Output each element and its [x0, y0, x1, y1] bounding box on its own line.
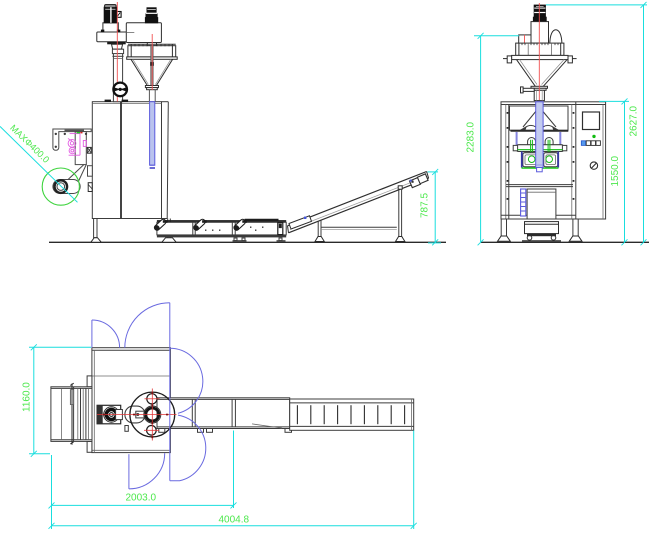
- svg-text:2283.0: 2283.0: [466, 121, 477, 152]
- svg-text:787.5: 787.5: [420, 193, 431, 218]
- svg-text:4004.8: 4004.8: [219, 515, 250, 526]
- svg-text:2627.0: 2627.0: [629, 105, 640, 136]
- svg-text:2003.0: 2003.0: [126, 493, 157, 504]
- svg-text:1550.0: 1550.0: [610, 155, 621, 186]
- svg-text:1160.0: 1160.0: [22, 382, 33, 412]
